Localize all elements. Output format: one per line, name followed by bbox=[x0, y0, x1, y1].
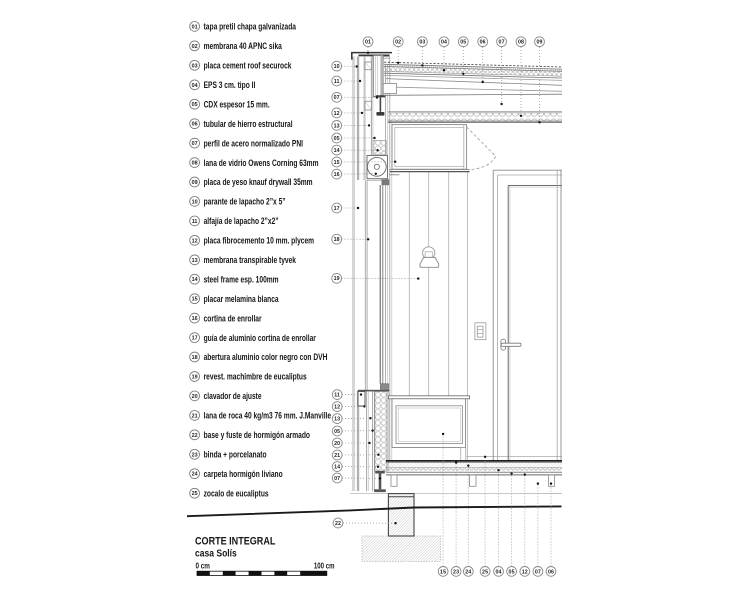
svg-text:0 cm: 0 cm bbox=[196, 561, 211, 571]
svg-text:15: 15 bbox=[192, 297, 198, 303]
svg-text:07: 07 bbox=[334, 476, 340, 482]
svg-text:15: 15 bbox=[440, 569, 446, 575]
svg-text:18: 18 bbox=[334, 237, 340, 243]
svg-text:25: 25 bbox=[192, 491, 198, 497]
svg-text:lana de vidrio Owens Corning 6: lana de vidrio Owens Corning 63mm bbox=[204, 158, 319, 168]
svg-text:placa fibrocemento 10 mm. plyc: placa fibrocemento 10 mm. plycem bbox=[204, 236, 315, 246]
svg-text:25: 25 bbox=[482, 569, 488, 575]
svg-text:tubular de hierro estructural: tubular de hierro estructural bbox=[204, 119, 293, 129]
svg-text:01: 01 bbox=[365, 40, 371, 46]
svg-text:16: 16 bbox=[192, 316, 198, 322]
svg-text:04: 04 bbox=[495, 569, 501, 575]
svg-text:23: 23 bbox=[192, 452, 198, 458]
svg-text:zocalo de eucaliptus: zocalo de eucaliptus bbox=[204, 488, 269, 498]
svg-text:01: 01 bbox=[192, 24, 198, 30]
svg-text:placa de yeso knauf drywall 35: placa de yeso knauf drywall 35mm bbox=[204, 177, 313, 187]
svg-text:membrana 40 APNC sika: membrana 40 APNC sika bbox=[204, 41, 283, 51]
svg-text:22: 22 bbox=[335, 521, 341, 527]
svg-text:12: 12 bbox=[334, 405, 340, 411]
svg-text:abertura aluminio color negro: abertura aluminio color negro con DVH bbox=[204, 352, 328, 362]
svg-text:16: 16 bbox=[334, 172, 340, 178]
svg-text:base y fuste de hormigón armad: base y fuste de hormigón armado bbox=[204, 430, 311, 440]
svg-text:12: 12 bbox=[192, 238, 198, 244]
svg-text:07: 07 bbox=[334, 95, 340, 101]
svg-text:24: 24 bbox=[465, 569, 471, 575]
svg-text:carpeta hormigón liviano: carpeta hormigón liviano bbox=[204, 469, 283, 479]
svg-text:14: 14 bbox=[334, 465, 340, 471]
svg-text:13: 13 bbox=[334, 417, 340, 423]
svg-text:parante de lapacho 2”x 5”: parante de lapacho 2”x 5” bbox=[204, 197, 286, 207]
svg-text:100 cm: 100 cm bbox=[314, 561, 335, 571]
svg-text:cortina de enrollar: cortina de enrollar bbox=[204, 313, 262, 323]
svg-text:tapa pretil chapa galvanizada: tapa pretil chapa galvanizada bbox=[204, 22, 297, 32]
svg-text:CDX espesor 15 mm.: CDX espesor 15 mm. bbox=[204, 99, 270, 109]
svg-text:19: 19 bbox=[192, 375, 198, 381]
svg-text:13: 13 bbox=[192, 258, 198, 264]
svg-text:20: 20 bbox=[334, 441, 340, 447]
svg-text:19: 19 bbox=[334, 276, 340, 282]
svg-text:05: 05 bbox=[334, 429, 340, 435]
svg-text:17: 17 bbox=[334, 206, 340, 212]
svg-text:EPS 3 cm. tipo II: EPS 3 cm. tipo II bbox=[204, 80, 256, 90]
svg-text:02: 02 bbox=[192, 44, 198, 50]
svg-text:02: 02 bbox=[395, 40, 401, 46]
svg-text:alfajía de lapacho 2”x2”: alfajía de lapacho 2”x2” bbox=[204, 216, 279, 226]
svg-text:03: 03 bbox=[419, 40, 425, 46]
svg-text:10: 10 bbox=[192, 199, 198, 205]
svg-text:11: 11 bbox=[334, 393, 340, 399]
svg-text:08: 08 bbox=[518, 40, 524, 46]
svg-text:17: 17 bbox=[192, 336, 198, 342]
svg-text:07: 07 bbox=[499, 40, 505, 46]
svg-text:09: 09 bbox=[536, 40, 542, 46]
svg-text:05: 05 bbox=[509, 569, 515, 575]
svg-text:03: 03 bbox=[192, 63, 198, 69]
svg-text:05: 05 bbox=[334, 136, 340, 142]
svg-text:04: 04 bbox=[192, 83, 198, 89]
svg-text:guía de aluminio cortina de en: guía de aluminio cortina de enrollar bbox=[204, 333, 317, 343]
svg-text:21: 21 bbox=[192, 413, 198, 419]
svg-text:18: 18 bbox=[192, 355, 198, 361]
svg-text:CORTE INTEGRAL: CORTE INTEGRAL bbox=[195, 536, 275, 548]
svg-text:revest. machimbre de eucaliptu: revest. machimbre de eucaliptus bbox=[204, 372, 307, 382]
svg-text:10: 10 bbox=[334, 64, 340, 70]
svg-text:05: 05 bbox=[460, 40, 466, 46]
svg-text:04: 04 bbox=[441, 40, 447, 46]
svg-text:placar melamina blanca: placar melamina blanca bbox=[204, 294, 280, 304]
svg-text:05: 05 bbox=[192, 102, 198, 108]
svg-text:membrana transpirable tyvek: membrana transpirable tyvek bbox=[204, 255, 297, 265]
svg-text:21: 21 bbox=[334, 453, 340, 459]
svg-text:steel frame esp. 100mm: steel frame esp. 100mm bbox=[204, 274, 279, 284]
svg-text:23: 23 bbox=[453, 569, 459, 575]
svg-text:lana de roca 40 kg/m3 76 mm. J: lana de roca 40 kg/m3 76 mm. J.Manville bbox=[204, 411, 332, 421]
svg-text:07: 07 bbox=[535, 569, 541, 575]
svg-text:casa Solís: casa Solís bbox=[195, 549, 237, 560]
svg-text:11: 11 bbox=[334, 79, 340, 85]
svg-text:12: 12 bbox=[334, 111, 340, 117]
svg-text:clavador de ajuste: clavador de ajuste bbox=[204, 391, 262, 401]
svg-text:06: 06 bbox=[548, 569, 554, 575]
svg-text:22: 22 bbox=[192, 433, 198, 439]
svg-text:20: 20 bbox=[192, 394, 198, 400]
svg-text:09: 09 bbox=[192, 180, 198, 186]
svg-text:06: 06 bbox=[480, 40, 486, 46]
svg-text:06: 06 bbox=[192, 122, 198, 128]
svg-text:24: 24 bbox=[192, 472, 198, 478]
svg-text:14: 14 bbox=[192, 277, 198, 283]
svg-text:11: 11 bbox=[192, 219, 198, 225]
svg-text:12: 12 bbox=[522, 569, 528, 575]
svg-text:07: 07 bbox=[192, 141, 198, 147]
svg-text:13: 13 bbox=[334, 123, 340, 129]
svg-text:14: 14 bbox=[334, 148, 340, 154]
svg-text:binda + porcelanato: binda + porcelanato bbox=[204, 450, 267, 460]
svg-text:08: 08 bbox=[192, 161, 198, 167]
svg-text:15: 15 bbox=[334, 160, 340, 166]
svg-text:perfil de acero normalizado PN: perfil de acero normalizado PNI bbox=[204, 138, 303, 148]
svg-text:placa cement roof securock: placa cement roof securock bbox=[204, 61, 292, 71]
